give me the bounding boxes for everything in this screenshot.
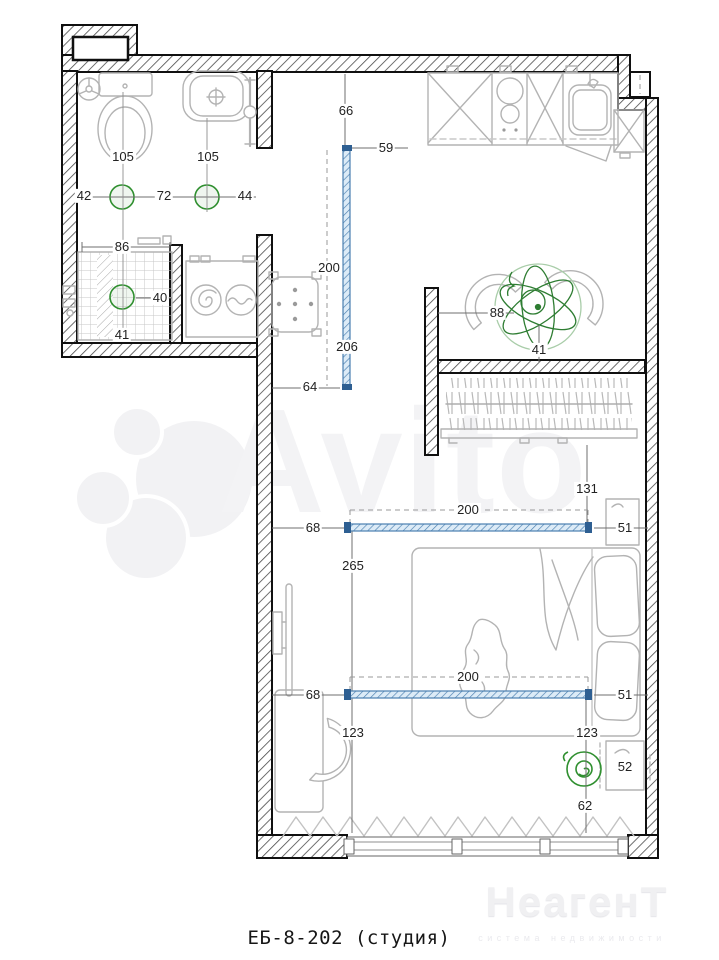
dimension-label: 42: [75, 189, 93, 203]
towel-rail: [244, 78, 256, 146]
extractor-fan-icon: [78, 78, 100, 100]
dimension-label: 200: [455, 670, 481, 684]
dimension-label: 41: [530, 343, 548, 357]
dimension-label: 105: [110, 150, 136, 164]
dimension-label: 59: [377, 141, 395, 155]
dimension-label: 62: [576, 799, 594, 813]
pouf: [269, 272, 321, 336]
dimension-label: 51: [616, 688, 634, 702]
dimension-label: 64: [301, 380, 319, 394]
desk: [275, 690, 323, 812]
floorplan-canvas: Avito: [0, 0, 719, 960]
dimension-label: 68: [304, 688, 322, 702]
dimension-label: 86: [113, 240, 131, 254]
dimension-label: 123: [340, 726, 366, 740]
dimension-label: 51: [616, 521, 634, 535]
window: [344, 837, 628, 856]
dimension-label: 44: [236, 189, 254, 203]
dimension-label: 72: [155, 189, 173, 203]
spiral-lamp-icon: [564, 752, 601, 786]
agency-logo: НеагенТ: [486, 878, 669, 926]
dimension-label: 200: [455, 503, 481, 517]
unit-caption: ЕБ-8-202 (студия): [248, 927, 451, 949]
dimension-label: 68: [304, 521, 322, 535]
curtain-zigzag: [283, 817, 634, 836]
dimension-label: 40: [151, 291, 169, 305]
dimension-label: 200: [316, 261, 342, 275]
dimension-label: 206: [334, 340, 360, 354]
sliding-partition: [344, 522, 592, 533]
chandelier-icon: [494, 264, 582, 350]
ceiling-light-icon: [110, 285, 134, 309]
tv: [273, 584, 292, 696]
bathroom-sink: [183, 71, 250, 121]
dimension-label: 52: [616, 760, 634, 774]
hob: [497, 78, 523, 132]
kitchen-sink: [566, 74, 611, 161]
bed: [412, 548, 640, 736]
washer-dryer: [186, 256, 258, 337]
dimension-label: 105: [195, 150, 221, 164]
dimension-label: 265: [340, 559, 366, 573]
dimension-label: 131: [574, 482, 600, 496]
dimension-label: 123: [574, 726, 600, 740]
dimension-label: 66: [337, 104, 355, 118]
wardrobe: [441, 378, 637, 443]
agency-tagline: система недвижимости: [478, 933, 665, 943]
floorplan-drawing: [0, 0, 719, 960]
sliding-partition: [344, 689, 592, 700]
dimension-label: 41: [113, 328, 131, 342]
wall-niche: [73, 37, 128, 60]
dimension-label: 88: [488, 306, 506, 320]
